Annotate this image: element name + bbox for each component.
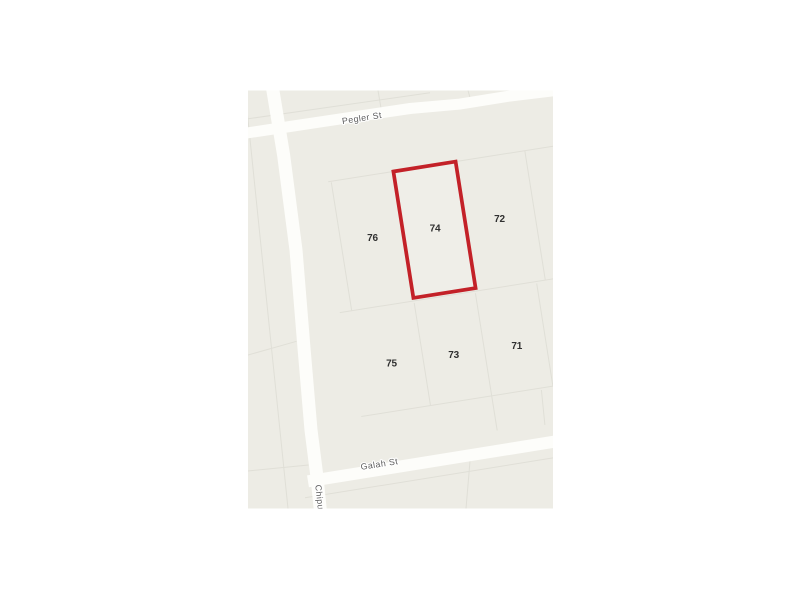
- svg-text:73: 73: [448, 350, 459, 361]
- svg-text:76: 76: [367, 233, 378, 244]
- svg-text:71: 71: [511, 341, 522, 352]
- svg-text:72: 72: [494, 214, 505, 225]
- svg-text:74: 74: [430, 223, 441, 234]
- svg-text:75: 75: [386, 359, 397, 370]
